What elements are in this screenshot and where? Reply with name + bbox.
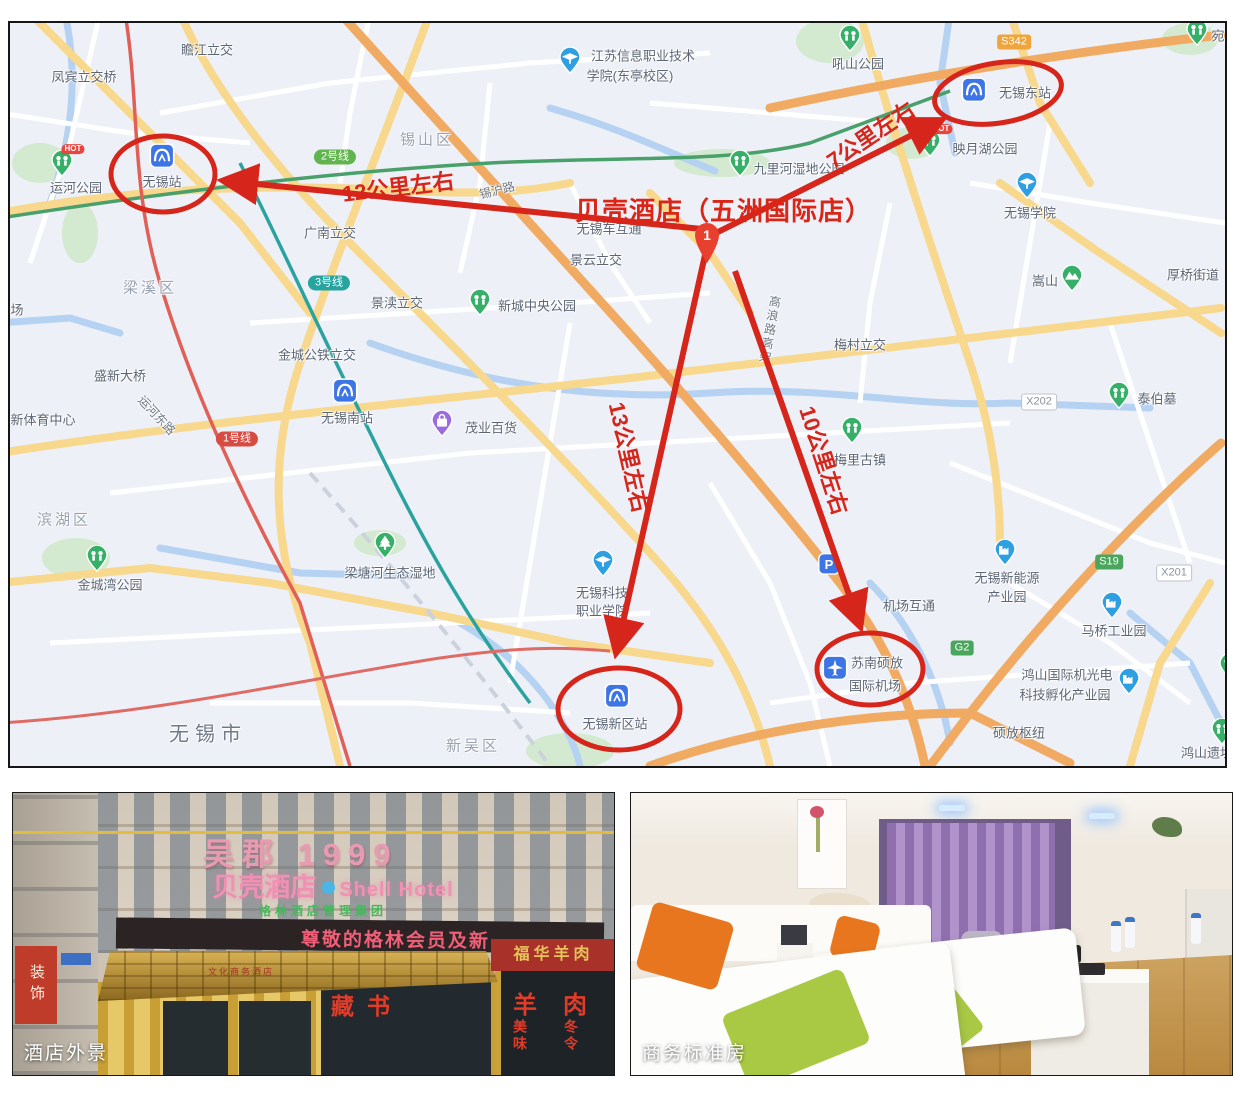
water-bottle-2 xyxy=(1125,917,1135,948)
window-decal-book: 藏书 xyxy=(331,987,403,1021)
hotel-group-sign: 格林酒店管理集团 xyxy=(228,902,418,919)
led-ticker-text: 尊敬的格林会员及新 xyxy=(301,924,490,953)
route-annotation-overlay xyxy=(10,23,1225,766)
highlight-ellipse xyxy=(930,53,1066,132)
water-bottle-1 xyxy=(1111,921,1121,952)
photo-caption-room: 商务标准房 xyxy=(642,1038,747,1065)
street-sign xyxy=(61,953,91,965)
wall-art xyxy=(797,799,847,889)
page: 锡山区梁溪区滨湖区新吴区无锡市瞻江立交凤宾立交桥广南立交景云立交景渎立交金城公铁… xyxy=(0,0,1240,1102)
window-decal-meat: 羊肉 xyxy=(513,985,613,1020)
shell-logo-icon xyxy=(322,881,335,894)
hotel-marker-pin[interactable]: 1 xyxy=(692,222,722,264)
map-canvas[interactable]: 锡山区梁溪区滨湖区新吴区无锡市瞻江立交凤宾立交桥广南立交景云立交景渎立交金城公铁… xyxy=(8,21,1227,768)
entrance-door-right xyxy=(239,1001,311,1076)
side-banner: 装饰 xyxy=(15,946,57,1024)
adjacent-building xyxy=(13,793,98,1075)
highlight-ellipse xyxy=(817,633,923,705)
water-bottle-3 xyxy=(1191,913,1201,944)
entrance-door-left xyxy=(163,1001,228,1076)
hotel-brand-sign: 贝壳酒店Shell Hotel xyxy=(153,867,513,904)
brand-cn: 贝壳酒店 xyxy=(212,872,316,902)
hotel-exterior-photo: 吴郡 1999 贝壳酒店Shell Hotel 格林酒店管理集团 尊敬的格林会员… xyxy=(12,792,615,1076)
window-decal-vertical-2: 冬令 xyxy=(561,1019,581,1053)
canopy-text: 文化商务酒店 xyxy=(208,965,274,978)
photo-caption-exterior: 酒店外景 xyxy=(24,1038,108,1065)
highlight-ellipse xyxy=(558,668,680,750)
hotel-location-title: 贝壳酒店（五洲国际店） xyxy=(575,191,872,228)
corner-shop-sign: 福华羊肉 xyxy=(491,939,615,971)
marker-number: 1 xyxy=(703,227,711,243)
highlight-ellipse xyxy=(111,136,215,212)
ceiling-light-1 xyxy=(939,805,965,811)
window-decal-vertical-1: 美味 xyxy=(510,1019,530,1053)
photo-frame xyxy=(781,925,807,945)
ceiling-light-2 xyxy=(1089,813,1115,819)
brand-en: Shell Hotel xyxy=(339,879,453,901)
guest-room-photo: 商务标准房 xyxy=(630,792,1233,1076)
distance-arrow xyxy=(735,271,859,623)
